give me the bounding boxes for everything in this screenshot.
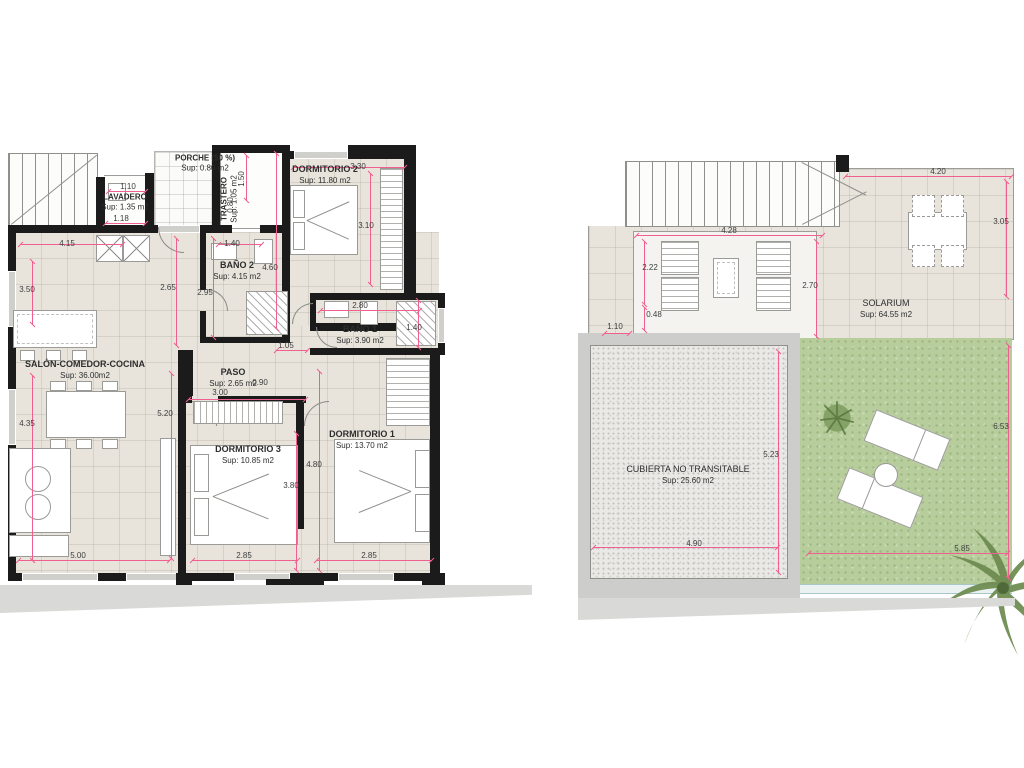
dimension-label: 5.20 bbox=[157, 410, 173, 418]
dimension-line bbox=[18, 560, 170, 561]
dimension-line bbox=[320, 310, 420, 311]
dimension-label: 4.35 bbox=[19, 420, 35, 428]
dimension-label: 2.95 bbox=[197, 289, 213, 297]
window bbox=[22, 573, 98, 581]
wardrobe bbox=[380, 168, 403, 290]
roof-window bbox=[756, 277, 791, 311]
dimension-label: 4.15 bbox=[59, 240, 75, 248]
wall-pier bbox=[836, 155, 849, 172]
dimension-line bbox=[276, 153, 277, 329]
dimension-line bbox=[604, 333, 630, 334]
outdoor-chair bbox=[941, 245, 964, 267]
chair bbox=[102, 381, 118, 391]
roof-window bbox=[756, 241, 791, 275]
dimension-line bbox=[644, 241, 645, 305]
room-area: Sup: 4.15 m2 bbox=[213, 272, 261, 282]
roof-window bbox=[661, 277, 699, 311]
dimension-line bbox=[192, 560, 298, 561]
window bbox=[8, 389, 16, 445]
floor-plan-sheet: 1.10 1.18 1.50 0.80 3.30 3.10 4.60 4.15 … bbox=[0, 0, 1024, 768]
apartment-floor-plan: 1.10 1.18 1.50 0.80 3.30 3.10 4.60 4.15 … bbox=[8, 143, 448, 603]
room-label-paso: PASO Sup: 2.65 m2 bbox=[209, 367, 257, 389]
room-label-dormitorio2: DORMITORIO 2 Sup: 11.80 m2 bbox=[292, 164, 358, 186]
tv-unit bbox=[160, 438, 176, 556]
dimension-label: 2.80 bbox=[352, 302, 368, 310]
room-name: SOLARIUM bbox=[862, 298, 909, 308]
room-label-salon: SALÓN-COMEDOR-COCINA Sup: 36.00m2 bbox=[25, 359, 145, 381]
armchair-row bbox=[9, 535, 69, 557]
bed-fold bbox=[307, 201, 349, 221]
wall bbox=[178, 396, 186, 573]
room-area: Sup: 11.80 m2 bbox=[292, 176, 358, 186]
room-label-bano1: BAÑO 1 Sup: 3.90 m2 bbox=[336, 324, 384, 346]
dimension-label: 5.00 bbox=[70, 552, 86, 560]
dimension-line bbox=[319, 371, 320, 571]
room-label-bano2: BAÑO 2 Sup: 4.15 m2 bbox=[213, 260, 261, 282]
lounger-backrest bbox=[913, 430, 926, 460]
dimension-line bbox=[188, 399, 306, 400]
window bbox=[338, 573, 394, 581]
window bbox=[294, 151, 348, 159]
dimension-label: 4.28 bbox=[721, 227, 737, 235]
dimension-label: 1.10 bbox=[607, 323, 623, 331]
room-area: Sup: 1.35 m2 bbox=[101, 203, 149, 213]
shrub bbox=[816, 397, 858, 439]
roof-window bbox=[661, 241, 699, 275]
outdoor-chair bbox=[912, 195, 935, 217]
bed-fold bbox=[213, 474, 269, 497]
round-side-table bbox=[874, 463, 898, 487]
kitchen-counter bbox=[96, 235, 123, 262]
dimension-label: 1.40 bbox=[406, 324, 422, 332]
wall bbox=[310, 293, 445, 300]
bed-fold bbox=[359, 491, 411, 513]
room-name: CUBIERTA NO TRANSITABLE bbox=[626, 464, 749, 474]
stair-bulkhead-area bbox=[633, 231, 817, 340]
dimension-label: 3.00 bbox=[212, 389, 228, 397]
dimension-line bbox=[176, 238, 177, 346]
dimension-label: 3.05 bbox=[993, 218, 1009, 226]
room-name: PASO bbox=[221, 367, 246, 377]
room-area: Sup: 64.55 m2 bbox=[860, 310, 912, 320]
room-name: BAÑO 2 bbox=[220, 260, 254, 270]
room-area: Sup: 0.80 m2 bbox=[175, 164, 235, 174]
double-bed bbox=[334, 439, 430, 543]
wall-pier bbox=[178, 350, 193, 396]
room-name: PORCHE (50 %) bbox=[175, 154, 235, 163]
dimension-label: 3.30 bbox=[350, 163, 366, 171]
dimension-label: 6.53 bbox=[993, 423, 1009, 431]
wall bbox=[8, 225, 158, 233]
dimension-line bbox=[1008, 345, 1009, 579]
dimension-label: 4.20 bbox=[930, 168, 946, 176]
dimension-label: 1.10 bbox=[120, 183, 136, 191]
pillow bbox=[293, 190, 305, 218]
room-label-lavadero: LAVADERO Sup: 1.35 m2 bbox=[101, 193, 149, 214]
dimension-line bbox=[808, 553, 1008, 554]
wardrobe bbox=[386, 358, 430, 426]
room-label-cubierta: CUBIERTA NO TRANSITABLE Sup: 25.60 m2 bbox=[626, 464, 749, 486]
wall bbox=[404, 145, 416, 295]
room-name: LAVADERO bbox=[103, 193, 147, 202]
dimension-label: 3.80 bbox=[283, 482, 299, 490]
room-label-solarium: SOLARIUM Sup: 64.55 m2 bbox=[860, 298, 912, 320]
chair bbox=[76, 439, 92, 449]
chair bbox=[102, 439, 118, 449]
dimension-label: 4.90 bbox=[686, 540, 702, 548]
room-area: Sup: 36.00m2 bbox=[25, 371, 145, 381]
roof-slab-shadow bbox=[0, 585, 532, 613]
room-label-dormitorio3: DORMITORIO 3 Sup: 10.85 m2 bbox=[215, 444, 281, 466]
dimension-label: 1.50 bbox=[238, 171, 246, 187]
stair-diagonal bbox=[11, 155, 97, 225]
dimension-line bbox=[246, 155, 247, 201]
chair bbox=[76, 381, 92, 391]
wall bbox=[282, 151, 294, 159]
dimension-line bbox=[316, 560, 432, 561]
dimension-label: 0.48 bbox=[646, 311, 662, 319]
round-side-table bbox=[25, 466, 51, 492]
dimension-label: 4.60 bbox=[262, 264, 278, 272]
deck-cutout bbox=[578, 155, 625, 226]
dimension-label: 4.80 bbox=[306, 461, 322, 469]
dimension-label: 3.50 bbox=[19, 286, 35, 294]
dimension-label: 1.05 bbox=[278, 342, 294, 350]
room-name: DORMITORIO 1 bbox=[329, 429, 395, 439]
outdoor-chair bbox=[941, 195, 964, 217]
chimney bbox=[713, 258, 739, 298]
window bbox=[126, 573, 182, 581]
shower bbox=[246, 291, 288, 335]
room-area: Sup: 3.90 m2 bbox=[336, 336, 384, 346]
staircase bbox=[8, 153, 98, 227]
room-area: Sup: 25.60 m2 bbox=[626, 476, 749, 486]
wall bbox=[430, 355, 440, 581]
dimension-line bbox=[171, 373, 172, 559]
chair bbox=[50, 381, 66, 391]
outdoor-chair bbox=[912, 245, 935, 267]
bed-fold bbox=[359, 470, 411, 492]
dimension-line bbox=[1006, 181, 1007, 297]
room-name: DORMITORIO 3 bbox=[215, 444, 281, 454]
bed-fold bbox=[307, 220, 349, 240]
dimension-line bbox=[32, 375, 33, 561]
island-detail bbox=[17, 314, 93, 344]
dimension-label: 3.10 bbox=[358, 222, 374, 230]
pillow bbox=[415, 494, 430, 532]
dimension-line bbox=[276, 350, 308, 351]
pillow bbox=[194, 454, 209, 492]
dimension-label: 0.80 bbox=[227, 197, 235, 213]
dimension-label: 2.22 bbox=[642, 264, 658, 272]
dimension-label: 2.85 bbox=[361, 552, 377, 560]
pillow bbox=[194, 498, 209, 536]
dimension-line bbox=[105, 223, 146, 224]
wall bbox=[310, 348, 445, 355]
kitchen-counter bbox=[123, 235, 150, 262]
round-side-table bbox=[25, 494, 51, 520]
dimension-line bbox=[296, 433, 297, 571]
dimension-line bbox=[845, 176, 1012, 177]
wall bbox=[200, 311, 206, 337]
room-area: Sup: 13.70 m2 bbox=[329, 441, 395, 451]
pillow bbox=[293, 222, 305, 250]
lounger-backrest bbox=[862, 478, 875, 508]
dimension-label: 2.85 bbox=[236, 552, 252, 560]
bed-fold bbox=[213, 496, 269, 519]
dimension-label: 5.85 bbox=[954, 545, 970, 553]
dimension-label: 0.90 bbox=[252, 379, 268, 387]
staircase bbox=[625, 161, 840, 227]
room-name: SALÓN-COMEDOR-COCINA bbox=[25, 359, 145, 369]
wall bbox=[200, 230, 206, 290]
dimension-line bbox=[644, 307, 645, 331]
double-bed bbox=[290, 185, 358, 255]
roof-terrace-plan: 4.20 3.05 4.28 2.22 0.48 2.70 1.10 5.23 … bbox=[578, 155, 1015, 615]
chimney-detail bbox=[717, 262, 735, 294]
kitchen-island bbox=[13, 310, 97, 348]
dimension-line bbox=[636, 235, 823, 236]
room-name: BAÑO 1 bbox=[343, 324, 377, 334]
dimension-label: 2.65 bbox=[160, 284, 176, 292]
window bbox=[438, 308, 445, 343]
dimension-label: 1.40 bbox=[224, 240, 240, 248]
pillow bbox=[415, 450, 430, 488]
wardrobe bbox=[193, 401, 283, 424]
dining-table bbox=[46, 391, 126, 438]
room-name: DORMITORIO 2 bbox=[292, 164, 358, 174]
dimension-line bbox=[778, 351, 779, 573]
dimension-label: 5.23 bbox=[763, 451, 779, 459]
wall bbox=[212, 145, 290, 153]
dimension-label: 1.18 bbox=[113, 215, 129, 223]
room-label-dormitorio1: DORMITORIO 1 Sup: 13.70 m2 bbox=[329, 429, 395, 451]
palm-tree bbox=[928, 513, 1024, 663]
room-area: Sup: 10.85 m2 bbox=[215, 456, 281, 466]
room-label-porche: PORCHE (50 %) Sup: 0.80 m2 bbox=[175, 154, 235, 175]
dimension-label: 2.70 bbox=[802, 282, 818, 290]
